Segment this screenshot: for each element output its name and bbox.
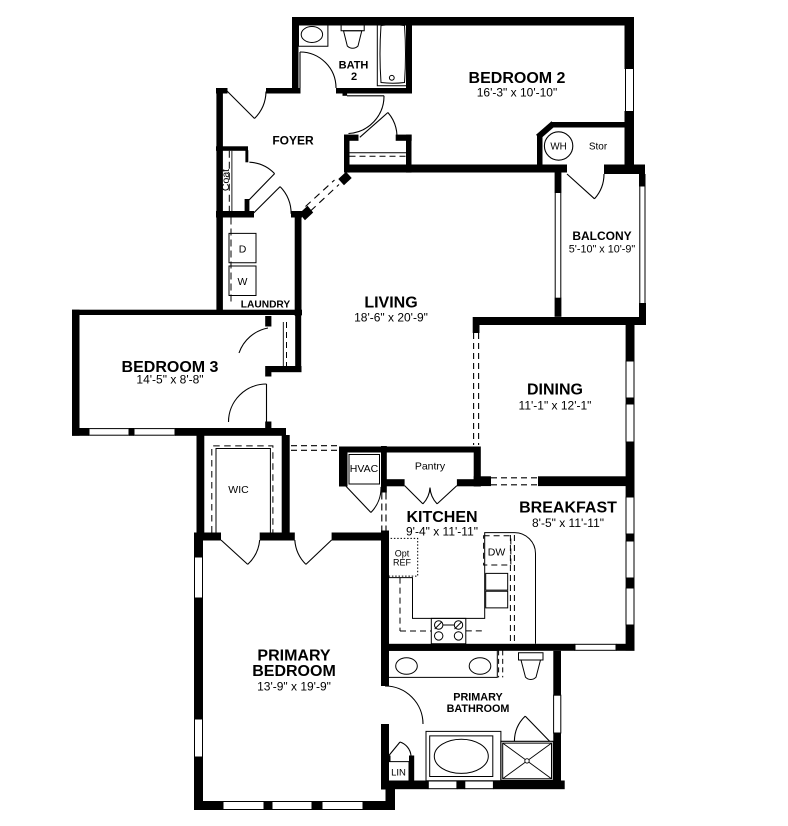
svg-text:18'-6" x 20'-9": 18'-6" x 20'-9"	[354, 311, 428, 325]
svg-text:Stor: Stor	[589, 141, 608, 152]
svg-text:PRIMARY: PRIMARY	[453, 692, 503, 704]
svg-text:13'-9" x 19'-9": 13'-9" x 19'-9"	[257, 680, 331, 694]
svg-text:8'-5" x 11'-11": 8'-5" x 11'-11"	[532, 516, 604, 530]
svg-text:16'-3" x 10'-10": 16'-3" x 10'-10"	[477, 86, 557, 100]
svg-text:Pantry: Pantry	[415, 461, 446, 473]
svg-text:11'-1" x 12'-1": 11'-1" x 12'-1"	[519, 398, 592, 412]
svg-text:DW: DW	[488, 547, 506, 559]
svg-text:WH: WH	[550, 142, 566, 153]
svg-text:BATHROOM: BATHROOM	[447, 703, 510, 715]
svg-text:BATH: BATH	[339, 60, 369, 72]
svg-text:BEDROOM: BEDROOM	[252, 663, 336, 680]
svg-text:WIC: WIC	[228, 484, 249, 496]
svg-text:DINING: DINING	[527, 382, 583, 399]
svg-text:LAUNDRY: LAUNDRY	[241, 300, 291, 311]
svg-text:FOYER: FOYER	[272, 134, 314, 148]
svg-text:Coat: Coat	[220, 169, 232, 191]
svg-text:PRIMARY: PRIMARY	[257, 648, 331, 665]
svg-text:LIVING: LIVING	[364, 295, 417, 312]
svg-text:REF: REF	[393, 558, 412, 568]
svg-text:BALCONY: BALCONY	[572, 229, 631, 243]
svg-text:5'-10" x 10'-9": 5'-10" x 10'-9"	[569, 244, 636, 256]
svg-text:BEDROOM 2: BEDROOM 2	[469, 70, 566, 87]
svg-text:KITCHEN: KITCHEN	[406, 509, 477, 526]
svg-text:D: D	[239, 243, 247, 255]
svg-text:2: 2	[351, 71, 357, 83]
svg-text:LIN: LIN	[391, 768, 406, 779]
svg-text:BREAKFAST: BREAKFAST	[519, 500, 617, 517]
svg-text:14'-5" x 8'-8": 14'-5" x 8'-8"	[136, 373, 203, 387]
svg-text:9'-4" x 11'-11": 9'-4" x 11'-11"	[406, 525, 478, 539]
svg-text:HVAC: HVAC	[350, 463, 379, 475]
svg-text:W: W	[238, 276, 248, 288]
